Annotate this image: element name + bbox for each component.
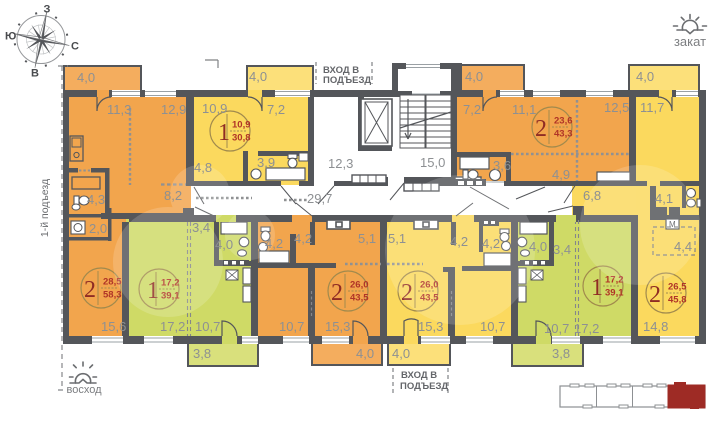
svg-text:восход: восход xyxy=(66,384,102,396)
svg-text:26,0: 26,0 xyxy=(350,280,369,291)
svg-text:5,1: 5,1 xyxy=(388,231,406,246)
svg-text:2,0: 2,0 xyxy=(89,221,107,236)
svg-text:8,2: 8,2 xyxy=(164,188,182,203)
svg-text:12,5: 12,5 xyxy=(604,100,629,115)
svg-text:2: 2 xyxy=(84,277,96,303)
svg-text:10,9: 10,9 xyxy=(202,101,227,116)
svg-text:10,7: 10,7 xyxy=(544,321,569,336)
svg-text:З: З xyxy=(44,4,51,16)
svg-text:12,9: 12,9 xyxy=(161,102,186,117)
svg-text:С: С xyxy=(71,41,79,53)
svg-text:4,0: 4,0 xyxy=(356,346,374,361)
svg-text:11,1: 11,1 xyxy=(512,102,536,117)
svg-text:В: В xyxy=(31,68,39,80)
svg-text:4,4: 4,4 xyxy=(674,239,692,254)
svg-text:2: 2 xyxy=(535,116,547,142)
svg-text:7,2: 7,2 xyxy=(267,102,285,117)
svg-text:4,2: 4,2 xyxy=(482,236,500,251)
svg-text:3,9: 3,9 xyxy=(257,155,275,170)
svg-text:17,2: 17,2 xyxy=(160,319,185,334)
svg-text:4,0: 4,0 xyxy=(636,69,654,84)
svg-text:4,3: 4,3 xyxy=(87,192,105,207)
svg-text:11,7: 11,7 xyxy=(640,100,664,115)
svg-text:4,0: 4,0 xyxy=(77,70,95,85)
svg-text:4,2: 4,2 xyxy=(450,234,468,249)
svg-text:ПОДЪЕЗД: ПОДЪЕЗД xyxy=(400,381,448,392)
svg-text:1: 1 xyxy=(218,120,230,146)
svg-text:58,3: 58,3 xyxy=(103,290,122,301)
svg-text:1-й подъезд: 1-й подъезд xyxy=(39,179,51,237)
svg-text:26,5: 26,5 xyxy=(668,282,687,293)
svg-text:5,1: 5,1 xyxy=(358,231,376,246)
svg-text:закат: закат xyxy=(674,34,706,49)
svg-text:ПОДЪЕЗД: ПОДЪЕЗД xyxy=(323,75,371,86)
svg-text:4,2: 4,2 xyxy=(265,236,283,251)
svg-text:4,0: 4,0 xyxy=(215,237,233,252)
svg-text:3,6: 3,6 xyxy=(493,158,511,173)
svg-text:3,4: 3,4 xyxy=(553,242,571,257)
svg-text:10,7: 10,7 xyxy=(279,319,304,334)
svg-text:7,2: 7,2 xyxy=(463,102,481,117)
svg-text:11,3: 11,3 xyxy=(107,102,131,117)
svg-text:1: 1 xyxy=(591,275,603,301)
svg-text:15,3: 15,3 xyxy=(325,319,350,334)
svg-text:15,6: 15,6 xyxy=(101,319,126,334)
svg-text:3,8: 3,8 xyxy=(552,346,570,361)
svg-text:23,6: 23,6 xyxy=(554,116,573,127)
svg-text:29,7: 29,7 xyxy=(307,191,332,206)
svg-text:10,9: 10,9 xyxy=(232,120,251,131)
svg-text:15,0: 15,0 xyxy=(420,155,445,170)
svg-text:3,4: 3,4 xyxy=(192,220,210,235)
svg-text:15,3: 15,3 xyxy=(418,319,443,334)
svg-text:12,3: 12,3 xyxy=(328,156,353,171)
svg-text:4,8: 4,8 xyxy=(194,160,212,175)
svg-text:43,3: 43,3 xyxy=(554,129,573,140)
svg-text:Ю: Ю xyxy=(5,31,16,43)
svg-text:6,8: 6,8 xyxy=(583,188,601,203)
svg-text:ВХОД В: ВХОД В xyxy=(401,370,437,381)
svg-text:3,8: 3,8 xyxy=(193,346,211,361)
svg-text:14,8: 14,8 xyxy=(643,319,668,334)
svg-text:10,7: 10,7 xyxy=(195,319,220,334)
svg-text:4,0: 4,0 xyxy=(392,346,410,361)
svg-text:10,7: 10,7 xyxy=(480,319,505,334)
svg-text:4,0: 4,0 xyxy=(465,69,483,84)
svg-text:30,8: 30,8 xyxy=(232,133,251,144)
svg-text:43,5: 43,5 xyxy=(350,293,369,304)
svg-text:4,2: 4,2 xyxy=(294,231,312,246)
svg-text:4,0: 4,0 xyxy=(529,239,547,254)
svg-text:17,2: 17,2 xyxy=(574,321,599,336)
svg-text:4,1: 4,1 xyxy=(655,191,673,206)
svg-text:45,8: 45,8 xyxy=(668,295,687,306)
svg-text:2: 2 xyxy=(649,282,661,308)
svg-text:4,9: 4,9 xyxy=(552,167,570,182)
svg-text:39,1: 39,1 xyxy=(605,288,624,299)
svg-text:4,0: 4,0 xyxy=(249,69,267,84)
svg-text:2: 2 xyxy=(331,280,343,306)
